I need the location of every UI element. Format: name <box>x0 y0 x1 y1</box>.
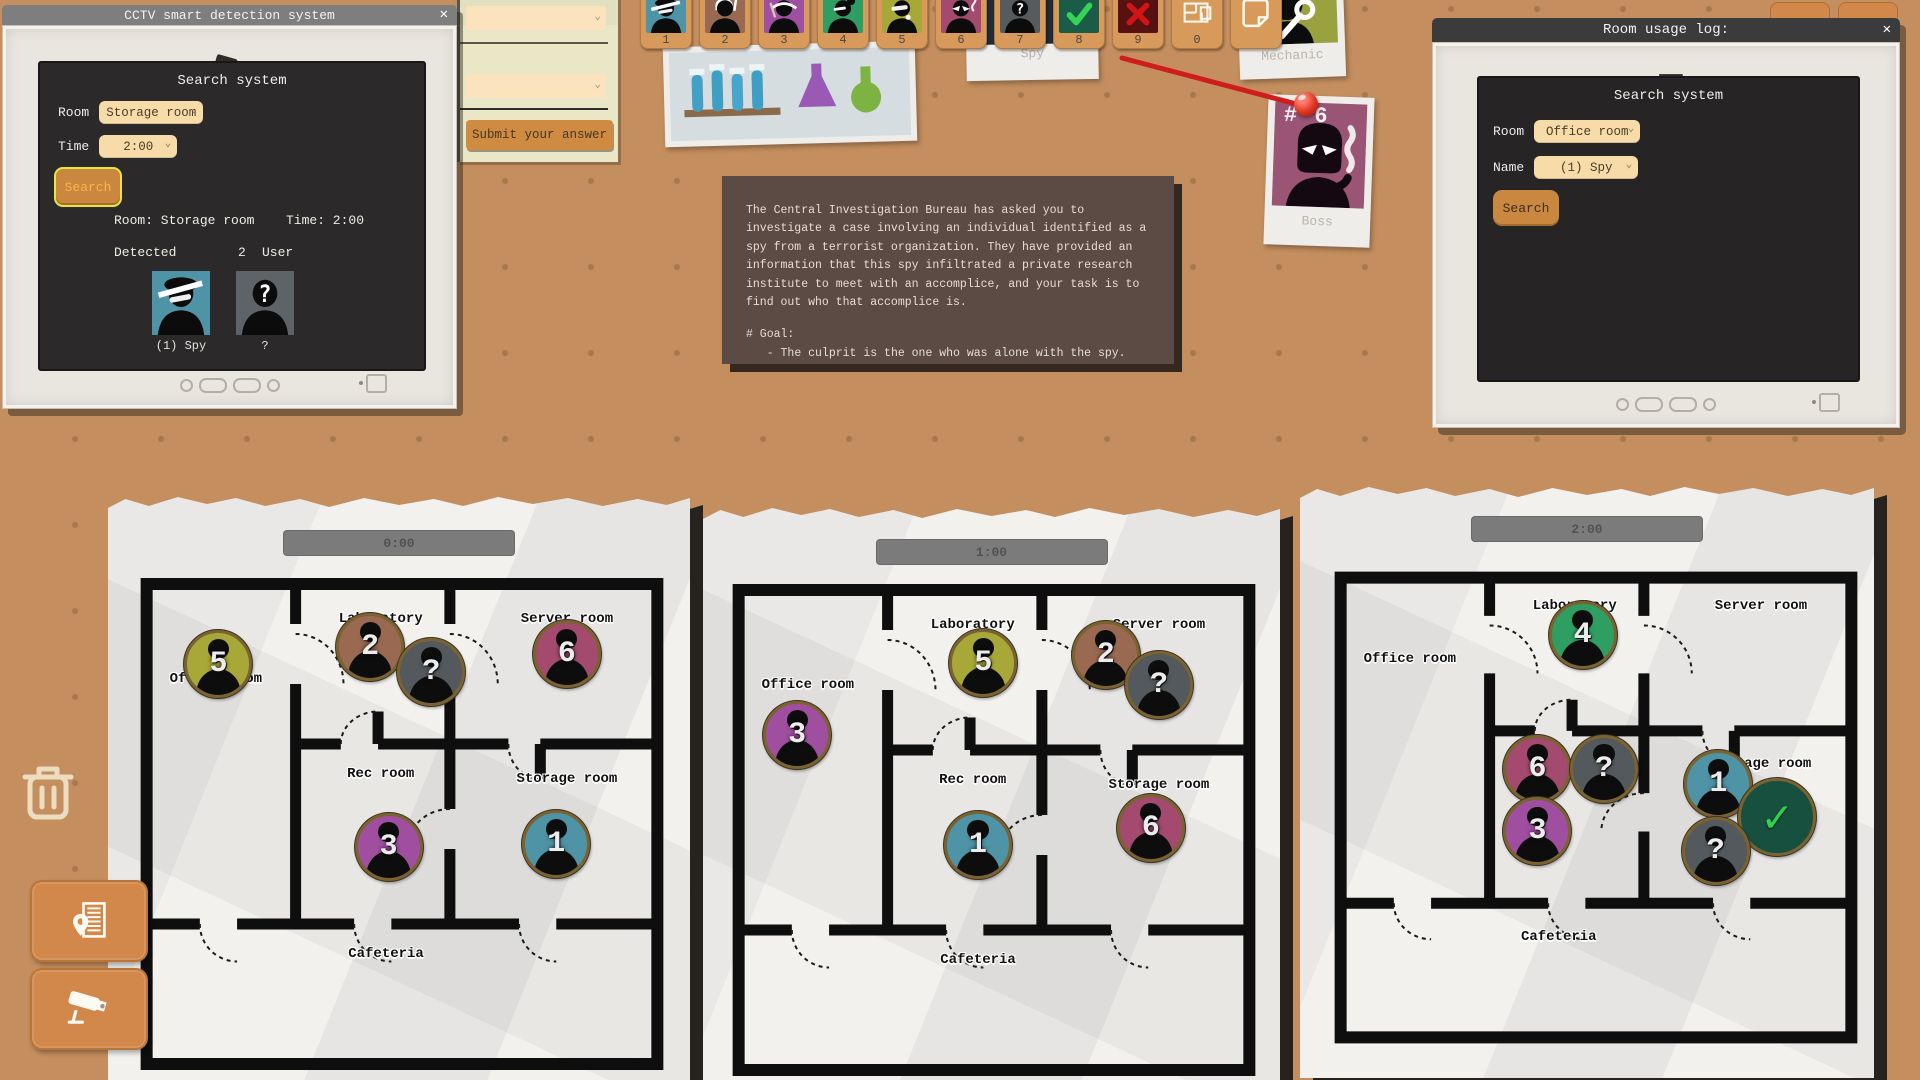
floorplan-time-badge: 1:00 <box>876 539 1108 565</box>
detected-count: 2 <box>238 245 246 260</box>
tile-number: 0 <box>1193 34 1200 46</box>
answer-dropdown-1[interactable] <box>466 6 606 30</box>
monitor-dot <box>1616 398 1629 411</box>
lab-photo[interactable] <box>663 41 918 148</box>
monitor-buttons <box>1616 397 1716 412</box>
red-pushpin[interactable] <box>1294 92 1318 116</box>
monitor-power-button <box>1819 393 1840 412</box>
suspect-tile-3[interactable]: 3 <box>758 0 810 49</box>
tile-number: 1 <box>662 34 669 46</box>
result-room: Room: Storage room <box>114 213 254 228</box>
room-label-office: Office room <box>1364 651 1456 667</box>
roomlog-window-title: Room usage log: <box>1603 22 1729 38</box>
suspect-token-6: 6 <box>1117 794 1185 862</box>
monitor-pill <box>1669 397 1697 412</box>
briefing-text: The Central Investigation Bureau has ask… <box>746 202 1154 312</box>
chef-portrait-icon <box>705 0 745 33</box>
room-label-storage: Storage room <box>516 771 617 787</box>
suspect-tile-6[interactable]: 6 <box>935 0 987 49</box>
monitor-dot <box>267 379 280 392</box>
case-briefing-panel: The Central Investigation Bureau has ask… <box>722 176 1174 364</box>
check-icon <box>1059 0 1099 33</box>
floor-plan-icon <box>1177 0 1217 33</box>
suspect-token-5: 5 <box>949 629 1017 697</box>
tile-number: 6 <box>957 34 964 46</box>
tile-number: 8 <box>1075 34 1082 46</box>
room-label-storage: Storage room <box>1108 777 1209 793</box>
room-label-cafeteria: Cafeteria <box>940 952 1016 968</box>
floorplan-time-badge: 0:00 <box>283 530 515 556</box>
suspect-token-6: 6 <box>533 620 601 688</box>
time-select[interactable]: 2:00 <box>99 135 177 158</box>
note-icon <box>1236 0 1276 33</box>
name-select[interactable]: (1) Spy <box>1534 156 1638 179</box>
detected-label: Detected <box>114 245 176 260</box>
search-system-heading: Search system <box>1479 88 1858 104</box>
glassware-illustration <box>669 47 911 141</box>
tile-number: 5 <box>898 34 905 46</box>
suspect-bar: 1 2 3 4 5 6 7 8 <box>640 0 1282 49</box>
monitor-dot <box>1703 398 1716 411</box>
trash-icon[interactable] <box>20 758 76 824</box>
room-field-label: Room <box>1493 124 1524 139</box>
detected-card-spy <box>152 271 210 335</box>
cctv-camera-icon <box>63 985 115 1033</box>
reporter-portrait-icon <box>882 0 922 33</box>
roomlog-screen: Search system Room Office room Name (1) … <box>1477 76 1860 382</box>
building-location-icon <box>66 899 112 943</box>
answer-notepad: Submit your answer <box>457 0 618 162</box>
room-select[interactable]: Office room <box>1534 120 1640 143</box>
floorplan-0100[interactable]: 1:00 Office room Laboratory Server room … <box>703 505 1280 1080</box>
verified-check-token: ✓ <box>1738 778 1816 856</box>
floorplan-0000[interactable]: 0:00 Office room Laboratory Server room … <box>108 494 690 1080</box>
suspect-tile-4[interactable]: 4 <box>817 0 869 49</box>
spy-portrait-icon <box>152 271 210 335</box>
room-label-rec: Rec room <box>939 772 1006 788</box>
maid-portrait-icon <box>764 0 804 33</box>
monitor-pill <box>199 378 227 393</box>
cctv-detection-window: CCTV smart detection system ✕ Search sys… <box>2 5 457 409</box>
spy-portrait-icon <box>646 0 686 33</box>
boss-polaroid-label: Boss <box>1264 212 1370 231</box>
suspect-token-5: 5 <box>184 630 252 698</box>
floorplan-paper: 1:00 Office room Laboratory Server room … <box>703 505 1280 1080</box>
room-label-rec: Rec room <box>347 766 414 782</box>
monitor-buttons <box>180 378 280 393</box>
cctv-window-title: CCTV smart detection system <box>124 8 335 23</box>
unknown-portrait-icon <box>1000 0 1040 33</box>
suspect-token-unknown: ? <box>1570 735 1638 803</box>
unknown-portrait-icon <box>236 271 294 335</box>
open-room-log-button[interactable] <box>30 880 148 962</box>
suspect-token-3: 3 <box>1503 797 1571 865</box>
suspect-token-3: 3 <box>763 701 831 769</box>
monitor-dot <box>180 379 193 392</box>
game-board: ? <box>0 0 1920 1080</box>
researcher-portrait-icon <box>823 0 863 33</box>
submit-answer-button[interactable]: Submit your answer <box>466 120 613 150</box>
result-time: Time: 2:00 <box>286 213 364 228</box>
room-label-server: Server room <box>1715 598 1807 614</box>
boss-portrait-icon <box>941 0 981 33</box>
cctv-search-button[interactable]: Search <box>54 167 122 207</box>
suspect-token-1: 1 <box>944 811 1012 879</box>
cross-icon <box>1118 0 1158 33</box>
tile-number: 4 <box>839 34 846 46</box>
room-label-cafeteria: Cafeteria <box>1521 929 1597 945</box>
cctv-window-titlebar[interactable]: CCTV smart detection system ✕ <box>2 5 457 25</box>
open-cctv-button[interactable] <box>30 968 148 1050</box>
suspect-token-unknown: ? <box>397 638 465 706</box>
floorplan-paper: 0:00 Office room Laboratory Server room … <box>108 494 690 1080</box>
answer-dropdown-2[interactable] <box>466 74 606 98</box>
boss-polaroid[interactable]: # 6 Boss <box>1263 94 1374 248</box>
detected-card-unknown <box>236 271 294 335</box>
card-label-spy: (1) Spy <box>141 339 221 353</box>
tile-number: 7 <box>1016 34 1023 46</box>
suspect-tile-5[interactable]: 5 <box>876 0 928 49</box>
goal-heading: # Goal: <box>746 326 1154 344</box>
detected-unit: User <box>262 245 293 260</box>
suspect-token-4: 4 <box>1549 601 1617 669</box>
time-field-label: Time <box>58 139 89 154</box>
suspect-tile-9-reject[interactable]: 9 <box>1112 0 1164 49</box>
room-select[interactable]: Storage room <box>99 101 203 124</box>
lab-photo-image <box>669 47 911 141</box>
room-label-cafeteria: Cafeteria <box>348 946 424 962</box>
suspect-tile-2[interactable]: 2 <box>699 0 751 49</box>
card-label-unknown: ? <box>225 339 305 353</box>
room-label-office: Office room <box>762 677 854 693</box>
suspect-token-2: 2 <box>336 613 404 681</box>
roomlog-search-button[interactable]: Search <box>1493 190 1559 226</box>
tile-number: 3 <box>780 34 787 46</box>
monitor-power-button <box>366 374 387 393</box>
room-field-label: Room <box>58 105 89 120</box>
cctv-screen: Search system Room Storage room Time 2:0… <box>38 61 426 371</box>
search-system-heading: Search system <box>40 73 424 89</box>
suspect-token-unknown: ? <box>1682 817 1750 885</box>
suspect-token-3: 3 <box>355 813 423 881</box>
suspect-tile-1[interactable]: 1 <box>640 0 692 49</box>
floorplan-paper: 2:00 Office room Laboratory Server room … <box>1300 484 1874 1078</box>
note-tool-button[interactable] <box>1230 0 1282 49</box>
monitor-pill <box>1635 397 1663 412</box>
tile-number: 9 <box>1134 34 1141 46</box>
room-usage-log-window: Room usage log: ✕ Search system Room Off… <box>1432 18 1900 428</box>
name-field-label: Name <box>1493 160 1524 175</box>
goal-item: - The culprit is the one who was alone w… <box>746 345 1154 363</box>
suspect-tile-8-confirm[interactable]: 8 <box>1053 0 1105 49</box>
suspect-token-unknown: ? <box>1125 651 1193 719</box>
floorplan-0200[interactable]: 2:00 Office room Laboratory Server room … <box>1300 484 1874 1078</box>
close-icon[interactable]: ✕ <box>1883 23 1891 37</box>
roomlog-window-titlebar[interactable]: Room usage log: ✕ <box>1432 18 1900 42</box>
suspect-tile-7[interactable]: 7 <box>994 0 1046 49</box>
suspect-token-1: 1 <box>522 810 590 878</box>
monitor-pill <box>233 378 261 393</box>
suspect-tile-0-floorplan[interactable]: 0 <box>1171 0 1223 49</box>
close-icon[interactable]: ✕ <box>440 8 448 22</box>
suspect-token-6: 6 <box>1503 735 1571 803</box>
tile-number: 2 <box>721 34 728 46</box>
floorplan-time-badge: 2:00 <box>1471 516 1703 542</box>
